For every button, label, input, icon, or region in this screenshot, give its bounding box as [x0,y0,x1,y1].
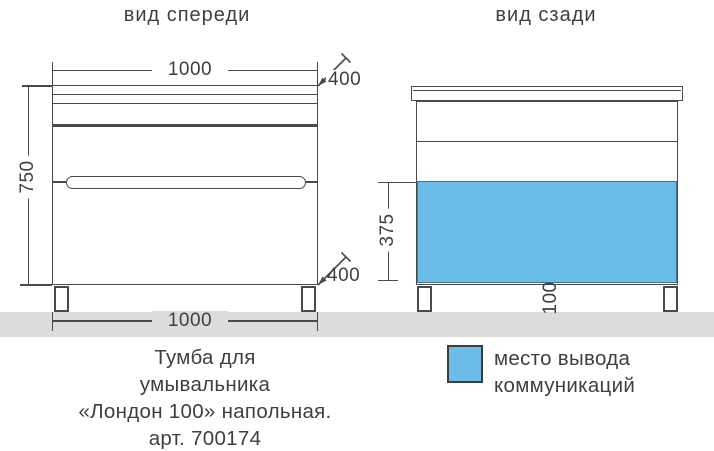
back-shelf-line [417,141,677,143]
communications-zone [417,181,677,283]
front-height-dim-tick-bottom [20,284,52,286]
back-leg-right [663,286,678,312]
front-handle-stub-right [305,181,317,183]
front-top-width-value: 1000 [152,60,228,80]
front-drawer-handle [66,176,306,189]
front-countertop-line [52,94,318,96]
back-leg-left [417,286,432,312]
caption-line-1: Тумба для [55,344,355,371]
front-bottom-width-value: 1000 [152,311,228,331]
legend-color-swatch [447,345,483,383]
front-drawer-divider-line [52,124,318,127]
front-depth-top-value: 400 [326,70,363,90]
front-height-value: 750 [18,155,38,198]
drawing-canvas: вид спереди 1000 750 400 400 1000 вид сз… [0,0,714,451]
front-leg-left [54,286,69,312]
front-view-title: вид спереди [62,4,312,27]
product-caption: Тумба для умывальника «Лондон 100» напол… [55,344,355,451]
front-bottom-dim-tick-right [317,312,319,331]
legend-label-line-1: место вывода [494,345,635,372]
back-zone-dim-tick-top [378,182,416,184]
legend-label: место вывода коммуникаций [494,345,635,399]
back-view-title: вид сзади [431,4,661,27]
caption-line-4: арт. 700174 [55,425,355,451]
caption-line-2: умывальника [55,371,355,398]
back-countertop-inner-line [413,90,681,91]
front-depth-bottom-value: 400 [325,266,362,286]
back-countertop-outline [411,86,683,101]
back-leg-zone-value: 100 [541,276,561,319]
caption-line-3: «Лондон 100» напольная. [55,398,355,425]
front-handle-stub-left [53,181,67,183]
back-zone-height-value: 375 [378,208,398,251]
front-height-dim-tick-top [22,85,52,87]
legend-label-line-2: коммуникаций [494,372,635,399]
front-drawer-top-line [52,103,318,105]
floor-strip [0,312,714,337]
front-bottom-dim-tick-left [52,312,54,331]
